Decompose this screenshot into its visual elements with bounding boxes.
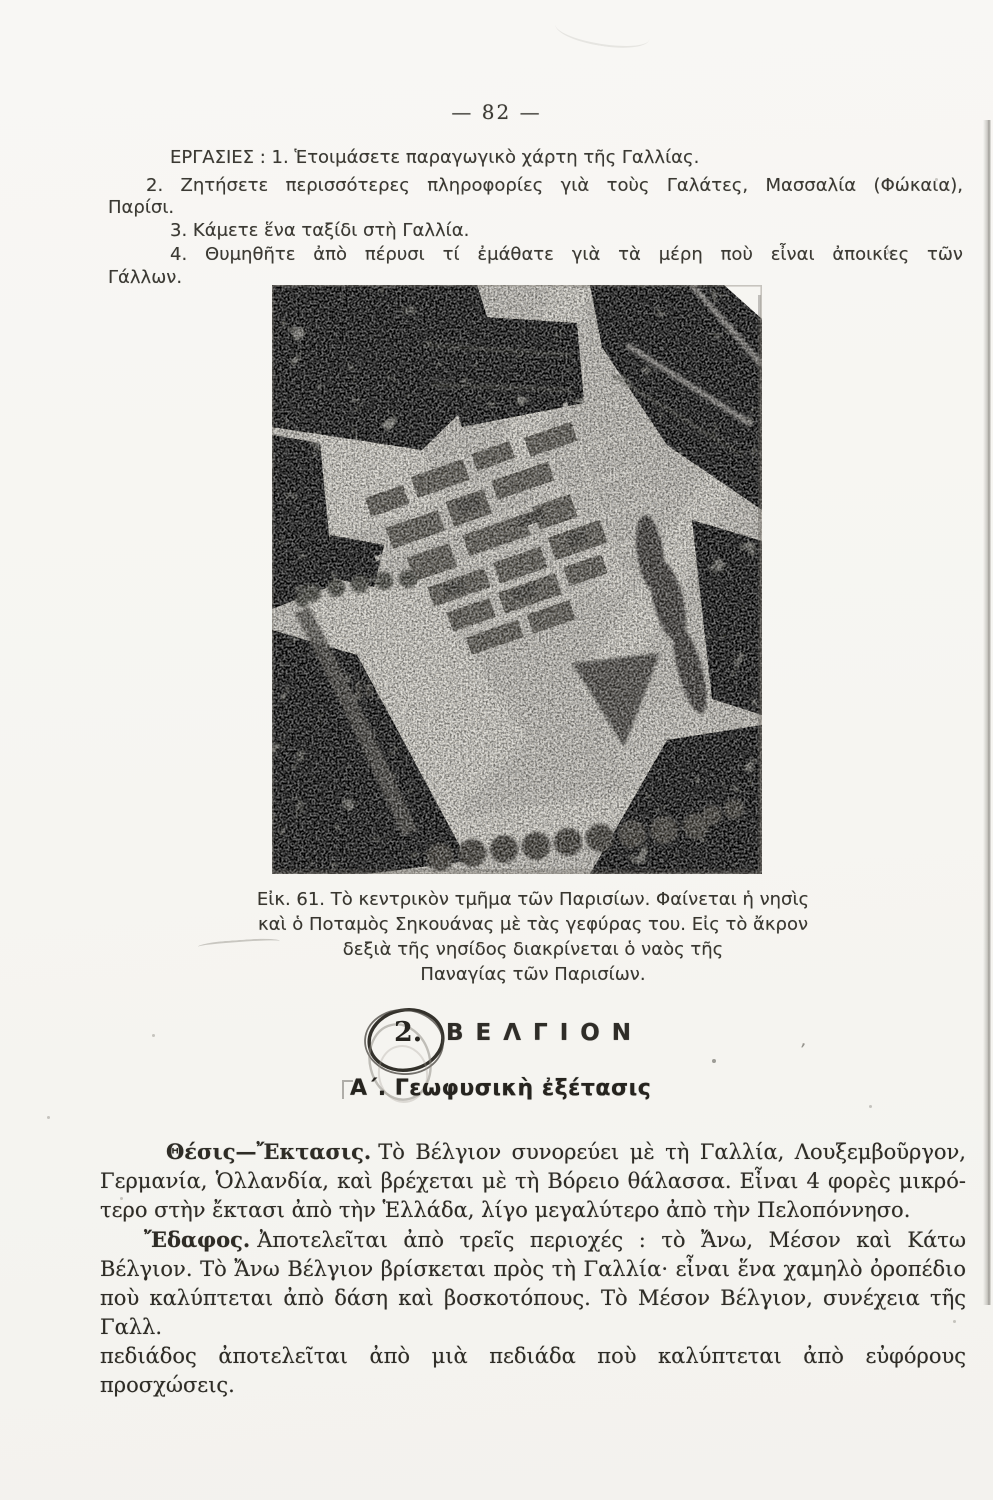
caption-line: Παναγίας τῶν Παρισίων. [100, 962, 966, 987]
section-number: 2. [394, 1017, 422, 1048]
caption-line: δεξιὰ τῆς νησίδος διακρίνεται ὁ ναὸς τῆς [100, 937, 966, 962]
exercise-line: 2. Ζητήσετε περισσότερες πληροφορίες γιὰ… [108, 175, 963, 198]
section-title: ΒΕΛΓΙΟΝ [446, 1020, 643, 1046]
paragraph-line: Βέλγιον. Τὸ Ἄνω Βέλγιον βρίσκεται πρὸς τ… [100, 1255, 966, 1284]
paper-speck [120, 1197, 123, 1200]
page-edge-shadow [983, 120, 991, 1305]
caption-line: Εἰκ. 61. Τὸ κεντρικὸν τμῆμα τῶν Παρισίων… [100, 887, 966, 912]
paragraph-text: Ἀποτελεῖται ἀπὸ τρεῖς περιοχές : τὸ Ἄνω,… [257, 1228, 966, 1252]
ink-dot-mark [712, 1059, 716, 1063]
stray-apostrophe-mark: ’ [797, 1040, 807, 1063]
paper-speck [47, 1116, 50, 1119]
aerial-photo-paris [272, 285, 762, 874]
caption-line: καὶ ὁ Ποταμὸς Σηκουάνας μὲ τὰς γεφύρας τ… [100, 912, 966, 937]
paper-speck [953, 1320, 956, 1323]
page-number: — 82 — [0, 100, 993, 124]
paragraph-lead-word: Ἔδαφος. [144, 1227, 250, 1252]
paragraph-line: πεδιάδος ἀποτελεῖται ἀπὸ μιὰ πεδιάδα ποὺ… [100, 1342, 966, 1400]
paper-speck [935, 178, 938, 181]
body-text: Θέσις—Ἔκτασις.Τὸ Βέλγιον συνορεύει μὲ τὴ… [100, 1137, 966, 1400]
book-page: — 82 — ΕΡΓΑΣΙΕΣ : 1. Ἑτοιμάσετε παραγωγι… [0, 0, 993, 1500]
paragraph-line: τερο στὴν ἔκτασι ἀπὸ τὴν Ἑλλάδα, λίγο με… [100, 1196, 966, 1225]
paragraph-lead-word: Θέσις—Ἔκτασις. [166, 1139, 371, 1164]
paragraph-line: ποὺ καλύπτεται ἀπὸ δάση καὶ βοσκοτόπους.… [100, 1284, 966, 1342]
paper-speck [869, 1105, 872, 1108]
paragraph-line: Γερμανία, Ὁλλανδία, καὶ βρέχεται μὲ τὴ Β… [100, 1167, 966, 1196]
pencil-smudge [553, 11, 651, 54]
exercise-line: 4. Θυμηθῆτε ἀπὸ πέρυσι τί ἐμάθατε γιὰ τὰ… [108, 244, 963, 267]
exercise-line: Παρίσι. [108, 197, 963, 220]
paragraph-line: Θέσις—Ἔκτασις.Τὸ Βέλγιον συνορεύει μὲ τὴ… [100, 1137, 966, 1167]
figure-caption: Εἰκ. 61. Τὸ κεντρικὸν τμῆμα τῶν Παρισίων… [100, 887, 966, 987]
exercises-block: ΕΡΓΑΣΙΕΣ : 1. Ἑτοιμάσετε παραγωγικὸ χάρτ… [108, 147, 963, 290]
section-subtitle: Α΄. Γεωφυσικὴ ἐξέτασις [350, 1076, 651, 1101]
exercise-line: 3. Κάμετε ἕνα ταξίδι στὴ Γαλλία. [108, 220, 963, 243]
paper-speck [152, 1034, 155, 1037]
paragraph-text: Τὸ Βέλγιον συνορεύει μὲ τὴ Γαλλία, Λουξε… [378, 1140, 966, 1164]
exercise-line: ΕΡΓΑΣΙΕΣ : 1. Ἑτοιμάσετε παραγωγικὸ χάρτ… [108, 147, 963, 170]
paragraph-line: Ἔδαφος.Ἀποτελεῖται ἀπὸ τρεῖς περιοχές : … [100, 1225, 966, 1255]
